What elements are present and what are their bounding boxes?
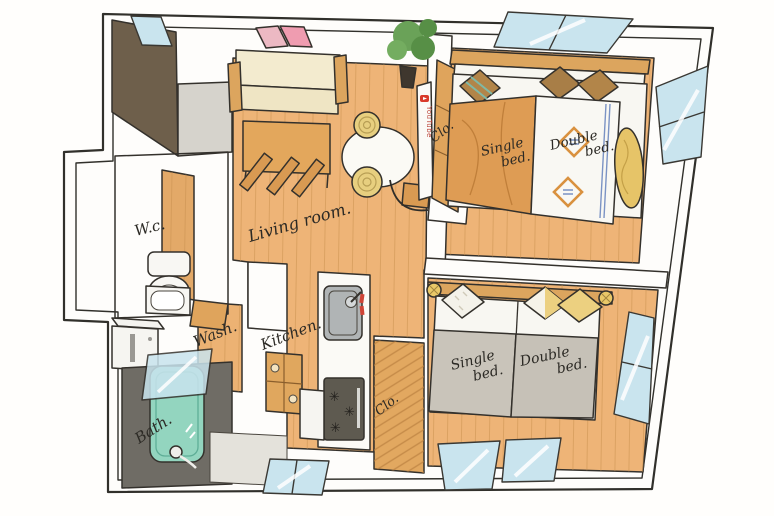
- svg-text:✳: ✳: [344, 405, 355, 420]
- kitchen-sink: [324, 286, 365, 340]
- kitchen-cabinet: [300, 389, 324, 440]
- tv-youtube: YouTube: [417, 82, 433, 200]
- kitchen-shelf: [266, 352, 302, 414]
- window-top: [494, 12, 633, 53]
- stove: ✳ ✳ ✳: [324, 378, 364, 440]
- plant-pot: [400, 66, 416, 88]
- floor-plan-illustration: ✳ ✳ ✳: [0, 0, 774, 516]
- svg-text:✳: ✳: [330, 421, 341, 436]
- rattan-stool: [352, 167, 382, 197]
- sofa: [228, 50, 348, 114]
- floor-plan-canvas: ✳ ✳ ✳: [0, 0, 774, 516]
- window-bottom-kitchen: [263, 459, 329, 495]
- rattan-stool: [354, 112, 380, 138]
- bedroom1: [432, 50, 650, 224]
- bedroom2: [427, 282, 613, 420]
- svg-text:✳: ✳: [329, 390, 340, 405]
- washbasin: [146, 286, 190, 315]
- entry-gray-floor: [178, 82, 232, 156]
